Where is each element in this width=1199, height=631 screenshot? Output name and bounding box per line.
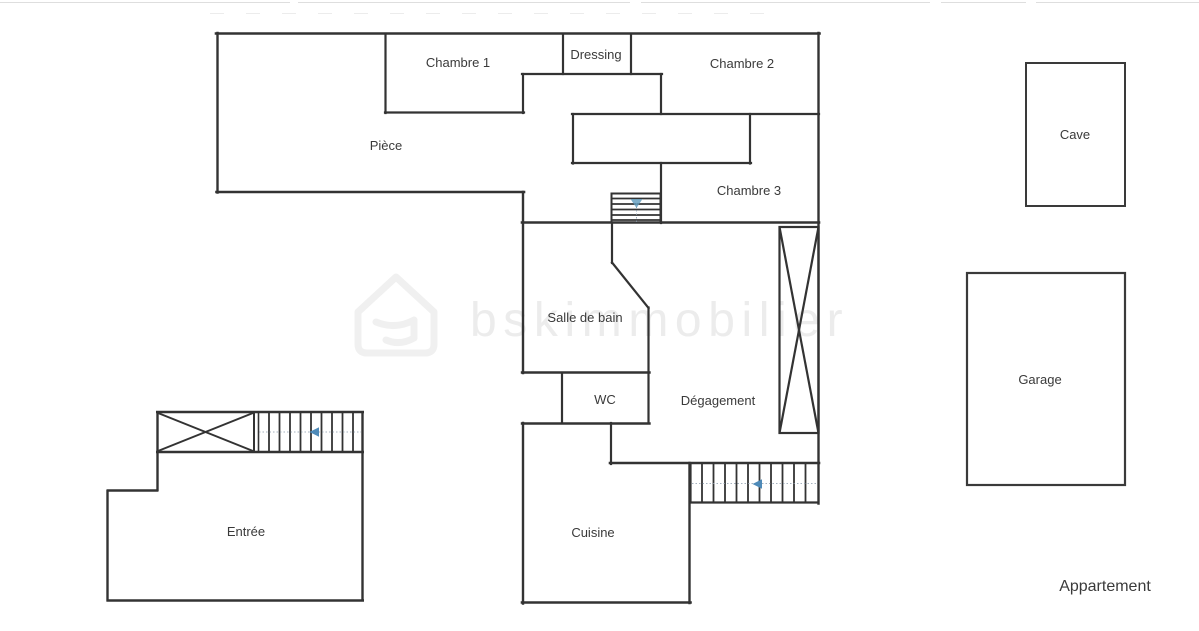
svg-text:Salle de bain: Salle de bain: [547, 310, 622, 325]
svg-text:Entrée: Entrée: [227, 524, 265, 539]
svg-text:Pièce: Pièce: [370, 138, 403, 153]
svg-text:Cave: Cave: [1060, 127, 1090, 142]
svg-text:WC: WC: [594, 392, 616, 407]
svg-text:Dégagement: Dégagement: [681, 393, 756, 408]
svg-text:Cuisine: Cuisine: [571, 525, 614, 540]
svg-text:Garage: Garage: [1018, 372, 1061, 387]
svg-text:Dressing: Dressing: [570, 47, 621, 62]
svg-text:Chambre 1: Chambre 1: [426, 55, 490, 70]
svg-text:Chambre 3: Chambre 3: [717, 183, 781, 198]
svg-text:Appartement: Appartement: [1059, 578, 1151, 595]
svg-text:Chambre 2: Chambre 2: [710, 56, 774, 71]
svg-text:bskimmobilier: bskimmobilier: [470, 294, 849, 347]
